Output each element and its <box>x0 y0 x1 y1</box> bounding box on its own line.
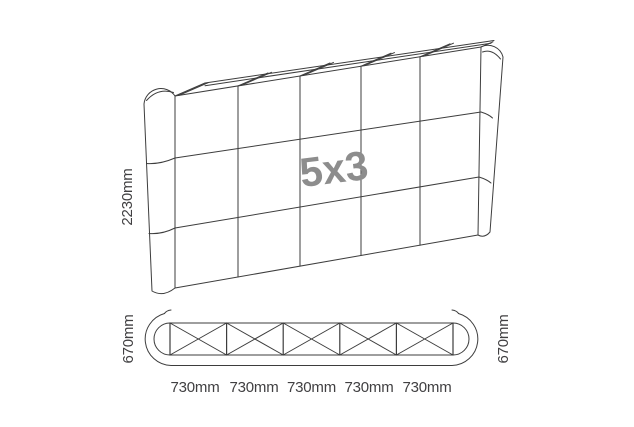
diagram-canvas: 2230mm 5x3 <box>0 0 634 427</box>
width-dimension-label: 730mm <box>170 379 219 396</box>
depth-dimension-label-left: 670mm <box>120 314 137 363</box>
width-dimension-label: 730mm <box>402 379 451 396</box>
size-label: 5x3 <box>297 142 371 196</box>
width-dimension-label: 730mm <box>344 379 393 396</box>
panel-top-faces <box>175 41 494 97</box>
width-dimension-label: 730mm <box>287 379 336 396</box>
plan-view <box>145 310 478 366</box>
right-end-cap <box>478 45 503 236</box>
plan-frame-truss <box>170 323 453 355</box>
height-dimension-label: 2230mm <box>119 168 136 225</box>
width-dimension-labels: 730mm 730mm 730mm 730mm 730mm <box>170 379 451 396</box>
left-end-cap <box>144 89 175 294</box>
depth-dimension-label-right: 670mm <box>495 314 512 363</box>
popup-display-dimension-diagram: 2230mm 5x3 <box>0 0 634 427</box>
width-dimension-label: 730mm <box>229 379 278 396</box>
